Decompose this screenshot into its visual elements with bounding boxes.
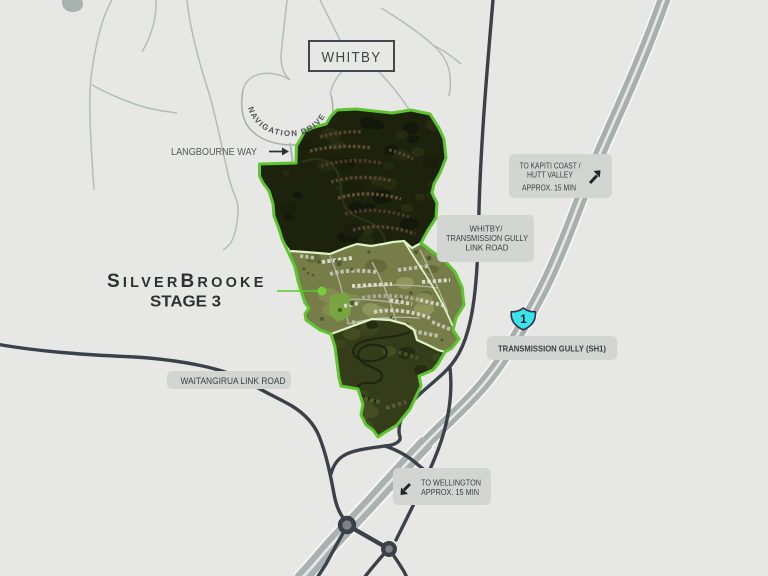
svg-text:TO WELLINGTON: TO WELLINGTON	[421, 478, 481, 488]
svg-text:LANGBOURNE WAY: LANGBOURNE WAY	[171, 147, 257, 158]
svg-text:TRANSMISSION GULLY: TRANSMISSION GULLY	[446, 233, 528, 243]
svg-text:APPROX. 15 MIN: APPROX. 15 MIN	[421, 487, 479, 497]
svg-text:SILVERBROOKE: SILVERBROOKE	[107, 271, 267, 292]
svg-text:TRANSMISSION GULLY (SH1): TRANSMISSION GULLY (SH1)	[498, 344, 606, 354]
svg-text:STAGE 3: STAGE 3	[150, 294, 221, 311]
svg-text:HUTT VALLEY: HUTT VALLEY	[527, 170, 573, 180]
svg-text:LINK ROAD: LINK ROAD	[466, 243, 509, 253]
svg-text:WHITBY/: WHITBY/	[470, 224, 504, 234]
svg-text:WAITANGIRUA LINK ROAD: WAITANGIRUA LINK ROAD	[181, 376, 286, 386]
svg-text:1: 1	[520, 314, 527, 326]
svg-text:APPROX. 15 MIN: APPROX. 15 MIN	[522, 183, 576, 193]
svg-text:WHITBY: WHITBY	[322, 49, 382, 66]
